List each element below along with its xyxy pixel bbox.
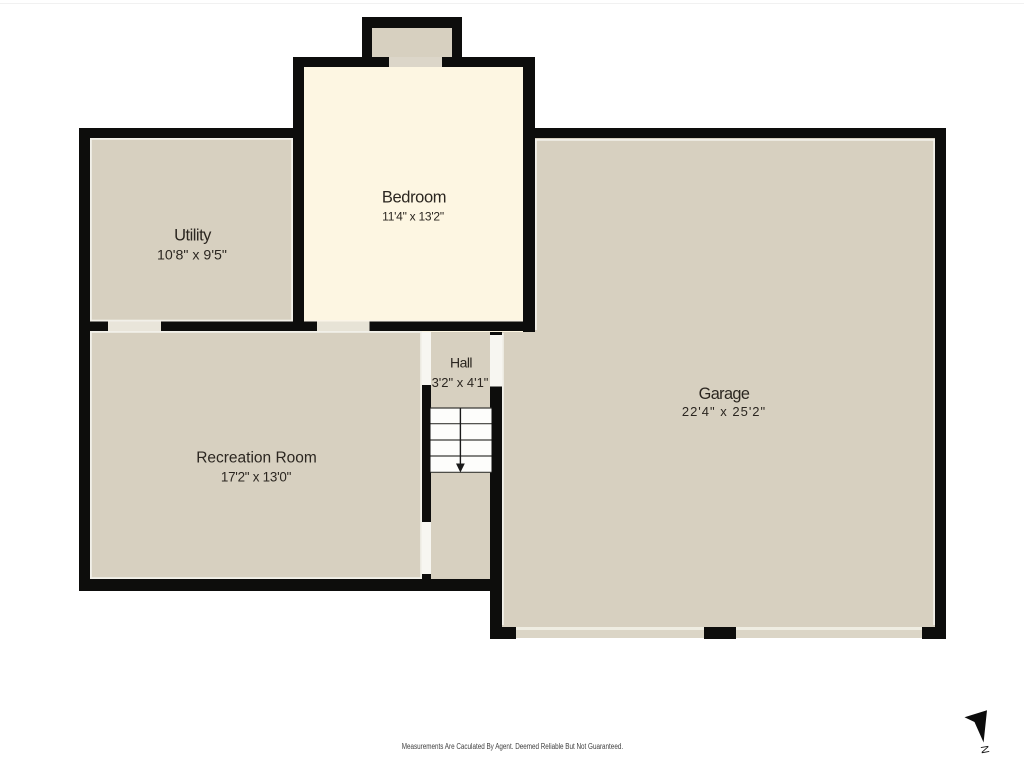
svg-text:Measurements Are Caculated By: Measurements Are Caculated By Agent. Dee… [402,741,623,751]
svg-text:Bedroom: Bedroom [382,189,446,207]
svg-text:Garage: Garage [699,385,750,403]
svg-text:Utility: Utility [174,227,212,245]
svg-text:3'2" x 4'1": 3'2" x 4'1" [432,375,489,390]
svg-text:Recreation Room: Recreation Room [196,450,317,467]
svg-text:10'8" x 9'5": 10'8" x 9'5" [157,248,227,264]
svg-text:Hall: Hall [450,355,472,371]
svg-text:17'2" x 13'0": 17'2" x 13'0" [221,470,292,485]
svg-text:11'4" x 13'2": 11'4" x 13'2" [382,210,444,224]
svg-text:22'4" x 25'2": 22'4" x 25'2" [682,404,766,419]
